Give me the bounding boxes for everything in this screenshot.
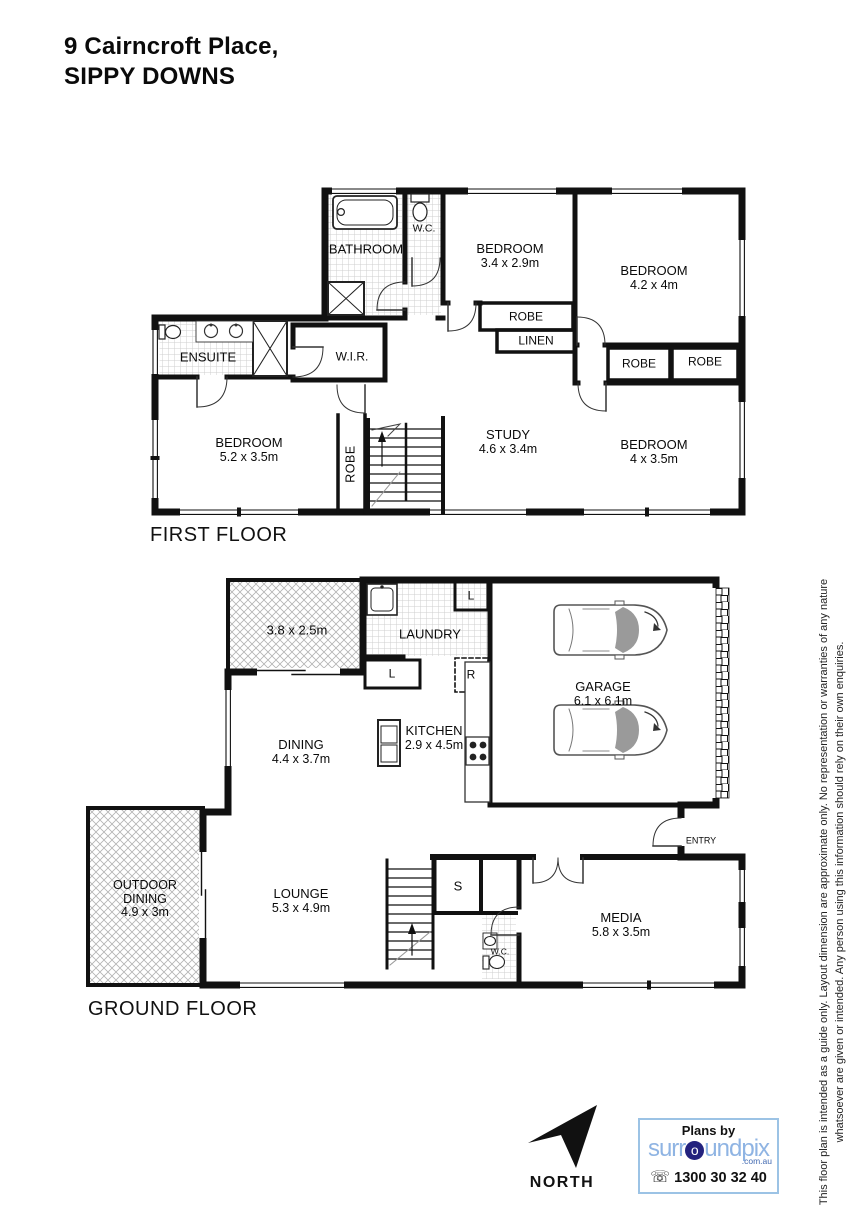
label-patio-dim: 3.8 x 2.5m [267, 623, 328, 638]
disclaimer-line1: This floor plan is intended as a guide o… [816, 568, 832, 1216]
north-label: NORTH [530, 1174, 594, 1192]
toilet-icon [411, 194, 429, 221]
room-label-outdoor-dining: OUTDOOR DINING 4.9 x 3m [113, 879, 177, 920]
address-line2: SIPPY DOWNS [64, 62, 279, 92]
shower-icon [328, 282, 364, 315]
room-label-wc-first: W.C. [413, 224, 436, 235]
label-storage: S [454, 879, 463, 894]
bathtub-icon [333, 196, 397, 229]
phone-row: ☏1300 30 32 40 [640, 1167, 777, 1187]
stairs-icon [368, 418, 443, 512]
room-label-study: STUDY 4.6 x 3.4m [479, 427, 537, 457]
label-robe-bed1: ROBE [509, 310, 543, 325]
label-fridge: R [467, 668, 476, 683]
floor-plan-graphics [0, 0, 864, 1222]
label-robe-hall: ROBE [344, 445, 359, 482]
north-arrow-icon [528, 1105, 597, 1168]
car-icon [554, 701, 667, 759]
kitchen-island-sink-icon [378, 720, 400, 766]
room-label-bathroom: BATHROOM [329, 242, 403, 257]
ensuite-toilet-icon [159, 325, 181, 339]
room-label-media: MEDIA 5.8 x 3.5m [592, 910, 650, 940]
phone-icon: ☏ [650, 1169, 670, 1186]
address-line1: 9 Cairncroft Place, [64, 32, 279, 62]
label-robe-bed2-left: ROBE [622, 357, 656, 372]
ensuite-shower-icon [253, 321, 287, 376]
first-floor-plan [151, 187, 747, 517]
stairs-icon [387, 860, 433, 968]
room-label-bedroom-4: BEDROOM 4 x 3.5m [620, 437, 687, 467]
kitchen-counter [465, 662, 490, 802]
label-linen-top: L [468, 589, 475, 604]
floor-plan-page: 9 Cairncroft Place, SIPPY DOWNS BATHROOM… [0, 0, 864, 1222]
room-label-dining: DINING 4.4 x 3.7m [272, 737, 330, 767]
room-label-wir: W.I.R. [336, 350, 369, 365]
first-floor-label: FIRST FLOOR [150, 524, 287, 547]
laundry-tub-icon [367, 584, 397, 615]
garage-door-icon [716, 588, 729, 798]
disclaimer: This floor plan is intended as a guide o… [816, 568, 854, 1216]
room-label-garage: GARAGE 6.1 x 6.1m [574, 679, 632, 709]
label-robe-bed2-right: ROBE [688, 355, 722, 370]
car-icon [554, 601, 667, 659]
room-label-lounge: LOUNGE 5.3 x 4.9m [272, 886, 330, 916]
phone-number: 1300 30 32 40 [674, 1170, 767, 1186]
room-label-bedroom-3: BEDROOM 5.2 x 3.5m [215, 435, 282, 465]
surroundpix-brand-box: Plans by surroundpix .com.au ☏1300 30 32… [638, 1118, 779, 1194]
label-linen-left: L [389, 667, 396, 682]
room-label-laundry: LAUNDRY [399, 627, 461, 642]
vanity-basins-icon [196, 321, 253, 342]
disclaimer-line2: whatsoever are given or intended. Any pe… [832, 568, 848, 1216]
label-linen: LINEN [518, 334, 553, 349]
ground-floor-label: GROUND FLOOR [88, 998, 257, 1021]
room-label-ensuite: ENSUITE [180, 350, 236, 365]
room-label-bedroom-1: BEDROOM 3.4 x 2.9m [476, 241, 543, 271]
page-title: 9 Cairncroft Place, SIPPY DOWNS [64, 32, 279, 92]
room-label-kitchen: KITCHEN 2.9 x 4.5m [405, 723, 463, 753]
room-label-wc-ground: W.C. [491, 947, 509, 958]
label-entry: ENTRY [686, 836, 716, 847]
surroundpix-swirl-icon: o [685, 1141, 704, 1160]
room-label-bedroom-2: BEDROOM 4.2 x 4m [620, 263, 687, 293]
